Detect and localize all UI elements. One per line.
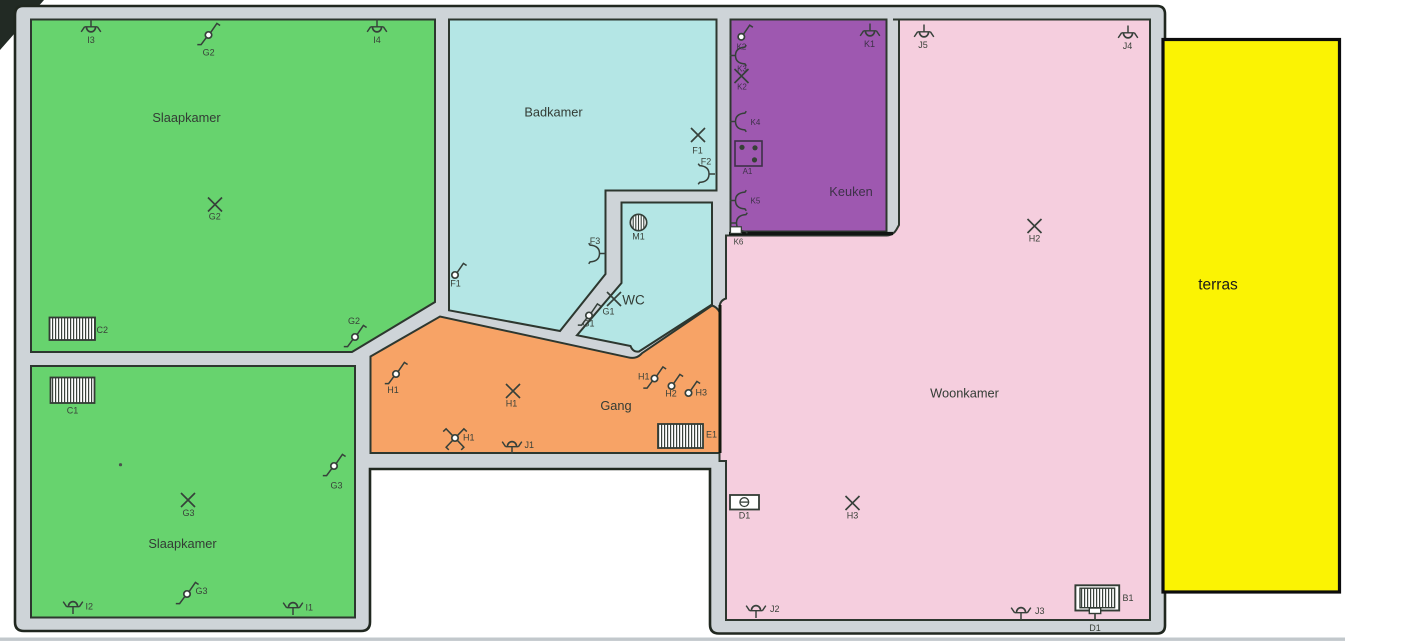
svg-text:G1: G1 bbox=[582, 319, 594, 329]
svg-text:G3: G3 bbox=[182, 508, 194, 518]
svg-text:I1: I1 bbox=[306, 603, 314, 613]
svg-text:I4: I4 bbox=[373, 35, 381, 45]
svg-text:F1: F1 bbox=[692, 146, 703, 156]
svg-text:G2: G2 bbox=[209, 212, 221, 222]
svg-text:G1: G1 bbox=[602, 307, 614, 317]
svg-text:Woonkamer: Woonkamer bbox=[930, 386, 999, 401]
svg-text:J5: J5 bbox=[918, 40, 928, 50]
svg-text:J4: J4 bbox=[1123, 41, 1133, 51]
svg-text:E1: E1 bbox=[706, 430, 717, 440]
svg-text:G3: G3 bbox=[196, 586, 208, 596]
svg-text:H2: H2 bbox=[1029, 234, 1041, 244]
svg-text:B1: B1 bbox=[1123, 593, 1134, 603]
svg-text:G3: G3 bbox=[330, 481, 342, 491]
svg-text:K2: K2 bbox=[737, 83, 747, 92]
svg-text:K1: K1 bbox=[864, 39, 875, 49]
svg-text:J3: J3 bbox=[1035, 606, 1045, 616]
svg-text:WC: WC bbox=[622, 293, 645, 308]
svg-text:terras: terras bbox=[1198, 277, 1238, 294]
svg-text:K5: K5 bbox=[751, 197, 761, 206]
svg-text:D1: D1 bbox=[1089, 623, 1101, 633]
svg-text:G2: G2 bbox=[348, 316, 360, 326]
svg-text:Badkamer: Badkamer bbox=[524, 105, 583, 120]
svg-text:H1: H1 bbox=[638, 372, 650, 382]
svg-text:K6: K6 bbox=[734, 238, 744, 247]
svg-text:K4: K4 bbox=[751, 118, 761, 127]
svg-text:H1: H1 bbox=[463, 433, 475, 443]
svg-text:H3: H3 bbox=[696, 388, 708, 398]
svg-text:C1: C1 bbox=[67, 406, 79, 416]
svg-text:Slaapkamer: Slaapkamer bbox=[152, 110, 221, 125]
svg-text:M1: M1 bbox=[632, 232, 645, 242]
svg-text:H3: H3 bbox=[847, 511, 859, 521]
svg-text:G2: G2 bbox=[203, 48, 215, 58]
svg-text:J1: J1 bbox=[525, 440, 535, 450]
svg-text:F3: F3 bbox=[590, 236, 601, 246]
svg-text:I2: I2 bbox=[86, 602, 94, 612]
svg-text:C2: C2 bbox=[97, 325, 109, 335]
svg-text:I3: I3 bbox=[87, 35, 95, 45]
svg-text:F1: F1 bbox=[450, 279, 461, 289]
svg-text:H1: H1 bbox=[387, 385, 399, 395]
svg-text:F2: F2 bbox=[701, 157, 712, 167]
svg-text:Slaapkamer: Slaapkamer bbox=[148, 536, 217, 551]
svg-text:A1: A1 bbox=[743, 167, 753, 176]
svg-text:Keuken: Keuken bbox=[829, 184, 872, 199]
svg-text:H2: H2 bbox=[665, 389, 677, 399]
svg-text:D1: D1 bbox=[739, 511, 751, 521]
svg-text:Gang: Gang bbox=[600, 398, 631, 413]
svg-text:H1: H1 bbox=[506, 399, 518, 409]
svg-text:J2: J2 bbox=[770, 604, 780, 614]
